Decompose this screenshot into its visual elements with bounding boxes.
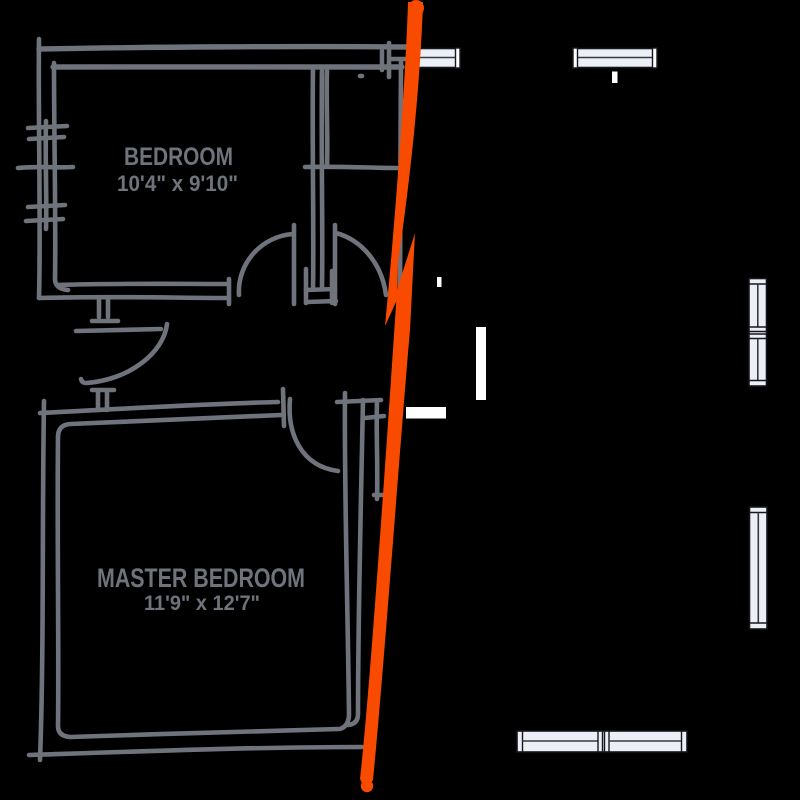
svg-text:MASTER BEDROOM: MASTER BEDROOM xyxy=(97,563,305,593)
svg-text:11'9" x 12'7": 11'9" x 12'7" xyxy=(144,592,260,615)
svg-text:10'4" x 9'10": 10'4" x 9'10" xyxy=(117,171,238,196)
svg-text:BEDROOM: BEDROOM xyxy=(124,143,233,171)
